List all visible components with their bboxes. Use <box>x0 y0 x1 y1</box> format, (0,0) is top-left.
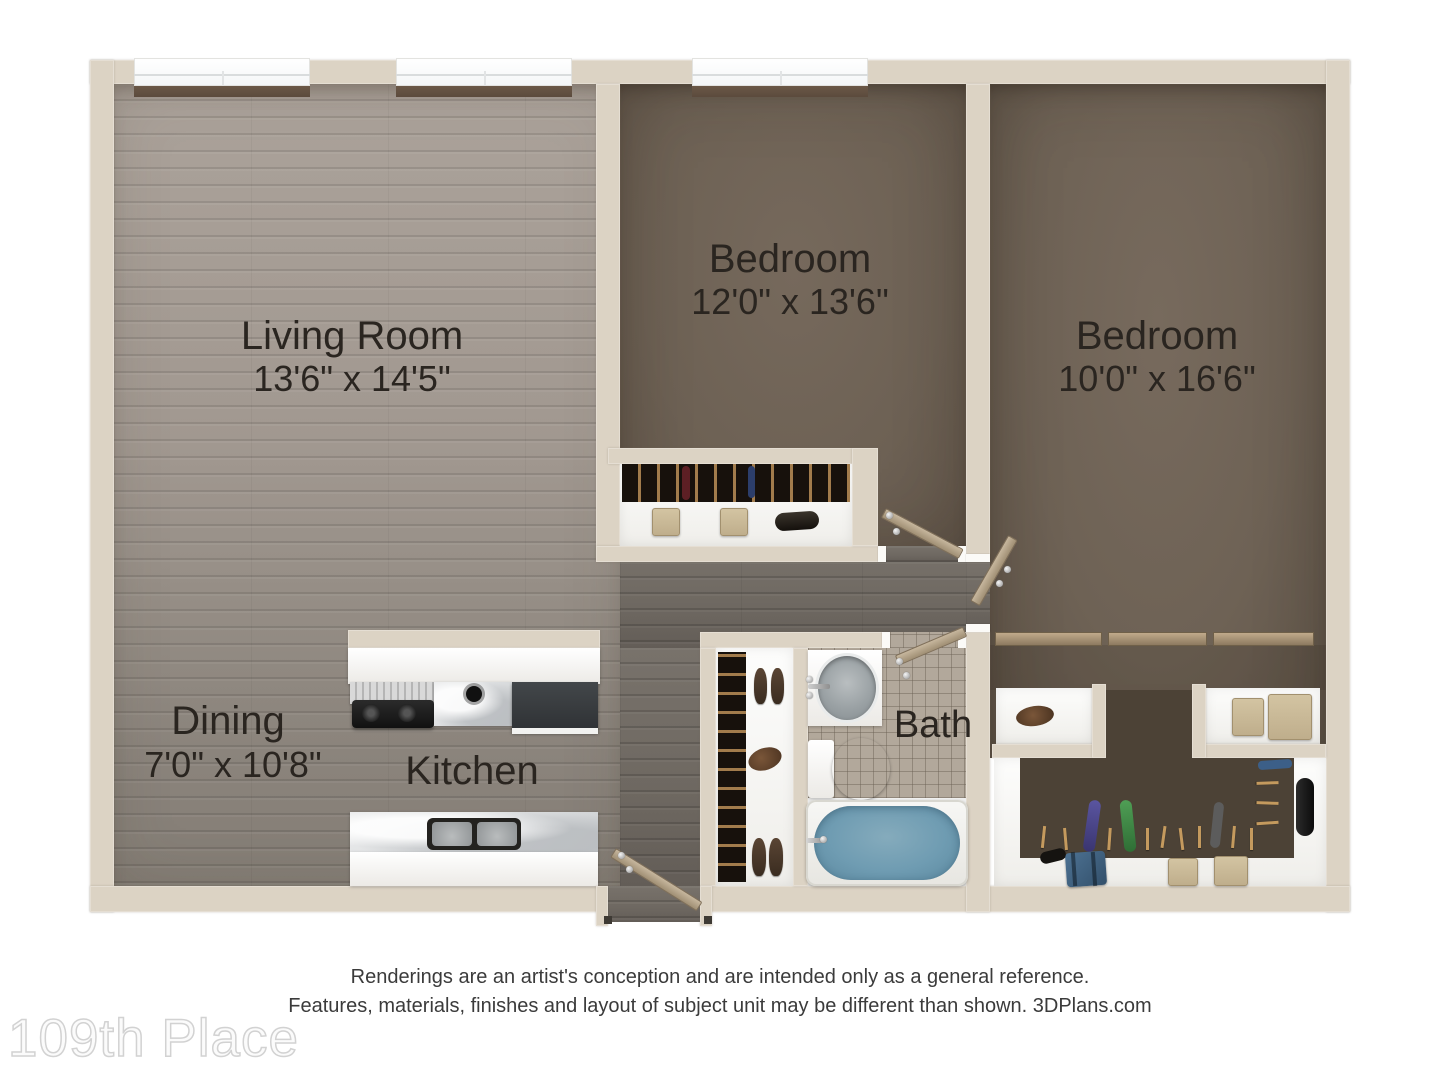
bedroom2-label: Bedroom <box>1076 315 1238 357</box>
window-sill-3 <box>692 86 868 97</box>
wall-end-cap <box>966 624 990 632</box>
bedroom1-closet-back-wall <box>608 448 862 464</box>
wall-bath-bedroom2 <box>966 632 990 912</box>
bedroom1-closet-right-wall <box>852 448 878 546</box>
hanging-clothes <box>1198 826 1201 848</box>
door-knob <box>896 658 903 665</box>
hanging-clothes <box>1146 828 1149 850</box>
window-mullion <box>484 71 486 86</box>
dining-label: Dining <box>171 700 284 742</box>
hall-closet-clothes <box>718 652 746 882</box>
faucet-handle <box>806 676 813 683</box>
shoe <box>752 838 766 876</box>
toilet-tank <box>808 740 834 798</box>
closet-box <box>1268 694 1312 740</box>
wall-end-cap <box>966 554 990 562</box>
bedroom1-dims: 12'0" x 13'6" <box>691 283 888 321</box>
entry-door-stop <box>704 916 712 924</box>
door-knob <box>893 528 900 535</box>
bedroom2-closet-rod <box>1108 632 1207 646</box>
disclaimer-line-1: Renderings are an artist's conception an… <box>0 966 1440 989</box>
door-knob <box>1004 566 1011 573</box>
dining-dims: 7'0" x 10'8" <box>144 746 321 784</box>
door-knob <box>886 512 893 519</box>
window-mullion <box>780 71 782 86</box>
closet-box <box>1168 858 1198 886</box>
outer-wall-bottom-left <box>90 886 608 912</box>
kitchen-label: Kitchen <box>405 750 538 792</box>
stove-burner <box>398 704 416 722</box>
refrigerator-handle <box>512 728 598 734</box>
living-room-dims: 13'6" x 14'5" <box>253 360 450 398</box>
refrigerator <box>512 682 598 732</box>
bath-label: Bath <box>894 706 972 746</box>
wall-end-cap <box>882 632 890 648</box>
hanging-garment-red <box>682 466 690 500</box>
faucet-handle <box>806 692 813 699</box>
alcove-left-bottom-wall <box>992 744 1096 758</box>
outer-wall-bottom-right <box>700 886 1350 912</box>
wall-living-bedroom1 <box>596 84 620 560</box>
garment-bag-black <box>1296 778 1314 836</box>
pot-on-counter <box>466 686 482 702</box>
hanging-garment-blue <box>748 466 755 498</box>
closet-box <box>1214 856 1248 886</box>
living-room-label: Living Room <box>241 315 463 357</box>
closet-bag <box>774 510 819 531</box>
window-mullion <box>222 71 224 86</box>
bathtub-drain <box>820 836 827 843</box>
bedroom1-closet-clothes <box>622 464 850 502</box>
entry-door-stop <box>604 916 612 924</box>
kitchen-lower-cabinet <box>350 852 598 886</box>
bathroom-faucet <box>808 684 830 689</box>
wall-bedroom1-bedroom2 <box>966 84 990 562</box>
kitchen-counter-backwall-top <box>348 630 600 648</box>
shoe <box>771 668 784 704</box>
kitchen-upper-counter <box>348 648 600 684</box>
bathtub-water <box>814 806 960 880</box>
outer-wall-left <box>90 60 114 912</box>
living-room-window-1 <box>134 58 310 86</box>
closet-box <box>1232 698 1264 736</box>
bedroom1-bottom-wall <box>596 546 886 562</box>
alcove-divider-wall-b <box>1192 684 1206 758</box>
floorplan-image: Living Room 13'6" x 14'5" Bedroom 12'0" … <box>0 0 1440 1080</box>
property-watermark: 109th Place <box>8 1008 299 1069</box>
toilet-bowl <box>832 738 890 800</box>
hanging-clothes <box>1250 828 1253 850</box>
window-sill-1 <box>134 86 310 97</box>
bedroom2-dims: 10'0" x 16'6" <box>1058 360 1255 398</box>
bedroom2-walkin-closet-entry <box>1106 690 1192 760</box>
window-sill-2 <box>396 86 572 97</box>
bedroom1-label: Bedroom <box>709 238 871 280</box>
bedroom2-closet-shadow-band <box>990 645 1326 690</box>
bedroom2-closet-rod <box>1213 632 1314 646</box>
kitchen-sink-basin-left <box>432 822 472 846</box>
bath-top-wall <box>700 632 890 648</box>
shoe <box>754 668 767 704</box>
alcove-divider-wall-a <box>1092 684 1106 758</box>
bedroom1-window <box>692 58 868 86</box>
living-room-window-2 <box>396 58 572 86</box>
bedroom2-closet-rod <box>995 632 1102 646</box>
stove-burner <box>362 704 380 722</box>
door-knob <box>626 866 633 873</box>
closet-box <box>652 508 680 536</box>
wall-end-cap <box>878 546 886 562</box>
door-knob <box>903 672 910 679</box>
shoe <box>769 838 783 876</box>
alcove-right-bottom-wall <box>1202 744 1326 758</box>
door-knob <box>618 852 625 859</box>
door-knob <box>996 580 1003 587</box>
hall-closet-left-wall <box>700 648 716 886</box>
kitchen-sink-basin-right <box>477 822 517 846</box>
outer-wall-right <box>1326 60 1350 912</box>
closet-box <box>720 508 748 536</box>
